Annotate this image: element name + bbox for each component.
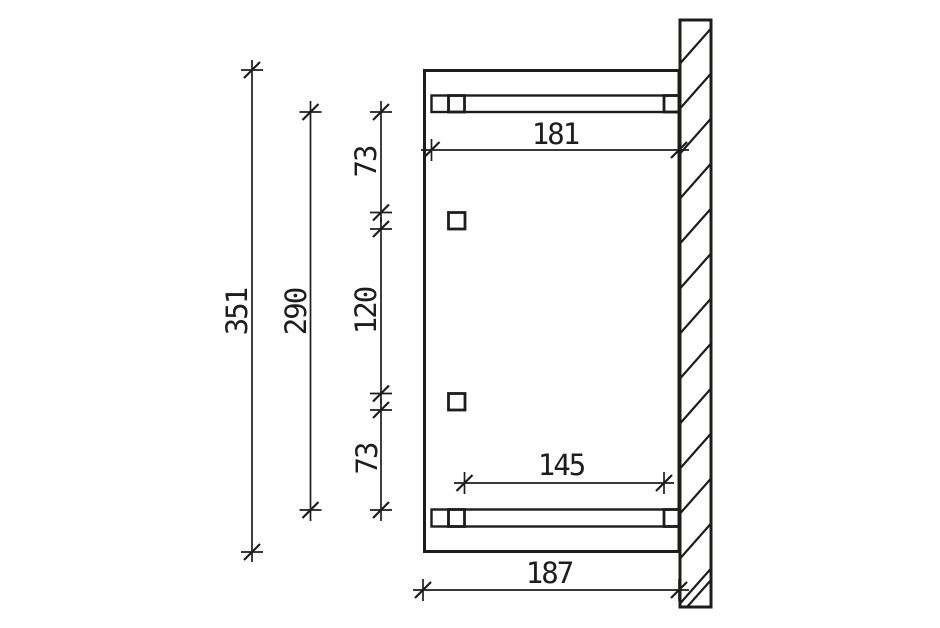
dim-label-total-depth: 187 bbox=[526, 556, 573, 590]
wall-hatch bbox=[681, 29, 712, 608]
bottom-beam-left-joint bbox=[449, 510, 465, 527]
hatch-line bbox=[681, 119, 712, 154]
hatch-line bbox=[681, 479, 712, 514]
dim-label-frame-height: 290 bbox=[279, 288, 313, 335]
hatch-line bbox=[687, 580, 711, 607]
bottom-beam-outline bbox=[432, 510, 680, 527]
hatch-line bbox=[681, 209, 712, 244]
dim-label-middle-spacing: 120 bbox=[349, 287, 383, 334]
bottom-beam bbox=[432, 510, 680, 527]
technical-drawing-canopy-side-view: 351 290 73 120 bbox=[0, 0, 940, 628]
bottom-beam-wall-joint bbox=[664, 510, 679, 527]
hatch-line bbox=[681, 344, 712, 379]
hatch-line bbox=[681, 524, 712, 559]
wall-outline bbox=[680, 20, 711, 607]
wall-section bbox=[680, 20, 711, 607]
top-beam-outline bbox=[432, 96, 680, 113]
dim-top-beam-length: 181 bbox=[421, 117, 689, 161]
hatch-line bbox=[681, 299, 712, 334]
hatch-line bbox=[681, 74, 712, 109]
dim-label-top-spacing: 73 bbox=[349, 146, 383, 177]
hatch-line bbox=[681, 389, 712, 424]
dim-bottom-spacing: 73 bbox=[350, 399, 392, 521]
rafter-cross-section-lower bbox=[449, 394, 466, 411]
dim-total-height: 351 bbox=[220, 60, 263, 562]
dim-label-top-beam-length: 181 bbox=[532, 117, 579, 151]
top-beam bbox=[432, 96, 680, 113]
hatch-line bbox=[681, 164, 712, 199]
drawing-canvas: 351 290 73 120 bbox=[0, 0, 940, 628]
dim-label-bottom-spacing: 73 bbox=[350, 443, 384, 474]
dim-label-total-height: 351 bbox=[220, 288, 254, 335]
dim-label-bottom-beam-span: 145 bbox=[538, 448, 585, 482]
dim-total-depth: 187 bbox=[413, 556, 689, 601]
dim-middle-spacing: 120 bbox=[349, 218, 392, 404]
hatch-line bbox=[681, 434, 712, 469]
hatch-line bbox=[681, 254, 712, 289]
hatch-line bbox=[681, 29, 712, 64]
top-beam-wall-joint bbox=[664, 96, 679, 113]
rafter-cross-section-upper bbox=[449, 213, 466, 230]
dim-bottom-beam-span: 145 bbox=[454, 448, 674, 494]
dim-frame-height: 290 bbox=[279, 101, 322, 521]
top-beam-left-joint bbox=[449, 96, 465, 113]
dim-top-spacing: 73 bbox=[349, 101, 392, 223]
